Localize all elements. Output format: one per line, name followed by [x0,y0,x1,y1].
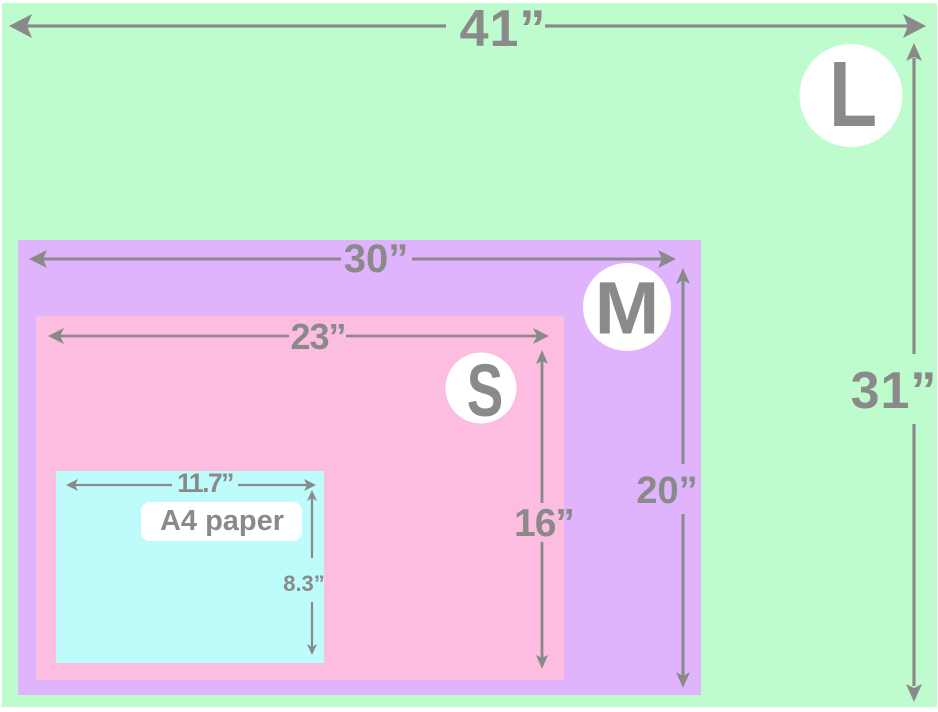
svg-text:31”: 31” [851,362,938,420]
svg-text:M: M [595,267,660,350]
svg-text:16”: 16” [514,502,574,545]
svg-text:8.3”: 8.3” [283,571,325,596]
svg-text:20”: 20” [636,470,697,512]
svg-text:11.7”: 11.7” [177,468,233,498]
svg-text:41”: 41” [460,0,547,58]
svg-text:A4 paper: A4 paper [160,505,284,537]
svg-text:30”: 30” [344,237,409,281]
svg-text:23”: 23” [290,316,345,357]
svg-text:L: L [829,43,877,146]
svg-text:S: S [467,349,504,432]
